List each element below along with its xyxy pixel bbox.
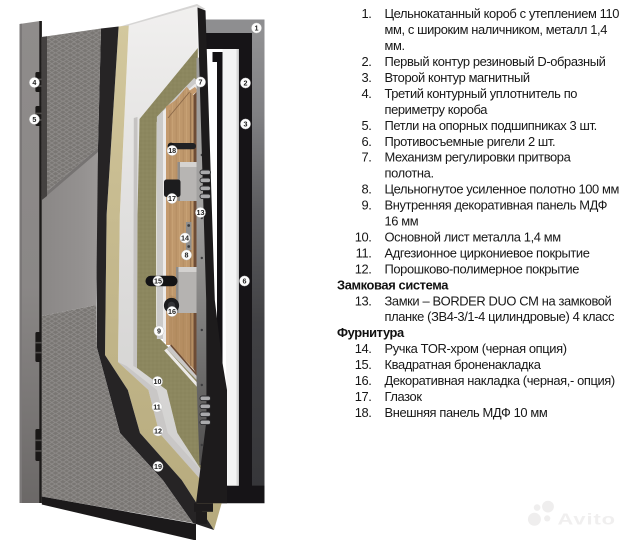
svg-text:Противосъемные ригели 2 шт.: Противосъемные ригели 2 шт.: [385, 134, 556, 149]
svg-text:Порошково-полимерное покрытие: Порошково-полимерное покрытие: [385, 261, 580, 276]
svg-text:7: 7: [199, 78, 203, 87]
svg-text:10.: 10.: [355, 230, 372, 245]
svg-text:Замковая система: Замковая система: [337, 277, 449, 292]
svg-text:Замки – BORDER DUO CM на замко: Замки – BORDER DUO CM на замковой: [385, 293, 612, 308]
svg-text:Третий контурный уплотнитель п: Третий контурный уплотнитель по: [385, 86, 578, 101]
svg-text:Первый контур резиновый D-обра: Первый контур резиновый D-образный: [385, 54, 606, 69]
svg-text:17: 17: [168, 194, 176, 203]
svg-text:11: 11: [153, 403, 161, 412]
svg-text:2: 2: [244, 79, 248, 88]
svg-text:Ручка TOR-хром (черная опция): Ручка TOR-хром (черная опция): [385, 341, 567, 356]
svg-text:Глазок: Глазок: [385, 389, 423, 404]
svg-text:1.: 1.: [362, 6, 372, 21]
svg-text:13: 13: [197, 208, 205, 217]
svg-text:8: 8: [185, 251, 189, 260]
svg-text:Фурнитура: Фурнитура: [337, 325, 405, 340]
svg-text:Внутренняя декоративная панель: Внутренняя декоративная панель МДФ: [385, 198, 608, 213]
svg-text:1: 1: [255, 24, 259, 33]
svg-text:15.: 15.: [355, 357, 372, 372]
svg-text:12.: 12.: [355, 261, 372, 276]
svg-text:5: 5: [32, 115, 36, 124]
svg-text:17.: 17.: [355, 389, 372, 404]
svg-text:9: 9: [157, 327, 161, 336]
svg-text:18.: 18.: [355, 405, 372, 420]
svg-text:10: 10: [154, 377, 162, 386]
svg-text:планке (ЗВ4-3/1-4 цилиндровые): планке (ЗВ4-3/1-4 цилиндровые) 4 класс: [385, 309, 615, 324]
svg-text:мм.: мм.: [385, 38, 405, 53]
svg-text:Основной лист металла 1,4 мм: Основной лист металла 1,4 мм: [385, 230, 561, 245]
svg-text:6.: 6.: [362, 134, 372, 149]
svg-text:мм, с широким наличником, мета: мм, с широким наличником, металл 1,4: [385, 22, 608, 37]
svg-text:Декоративная накладка (черная,: Декоративная накладка (черная,- опция): [385, 373, 615, 388]
svg-text:12: 12: [154, 427, 162, 436]
svg-text:4.: 4.: [362, 86, 372, 101]
svg-text:Петли на опорных подшипниках 3: Петли на опорных подшипниках 3 шт.: [385, 118, 597, 133]
svg-text:полотна.: полотна.: [385, 166, 434, 181]
svg-text:8.: 8.: [362, 182, 372, 197]
svg-text:4: 4: [32, 78, 36, 87]
svg-text:9.: 9.: [362, 198, 372, 213]
svg-text:11.: 11.: [356, 245, 372, 260]
svg-text:6: 6: [243, 277, 247, 286]
svg-text:14.: 14.: [355, 341, 372, 356]
svg-text:13.: 13.: [355, 293, 372, 308]
svg-text:Цельнокатанный короб с утеплен: Цельнокатанный короб с утеплением 110: [385, 6, 620, 21]
svg-text:16.: 16.: [355, 373, 372, 388]
svg-text:Avito: Avito: [558, 512, 616, 529]
svg-text:18: 18: [168, 146, 176, 155]
svg-text:Цельногнутое усиленное полотно: Цельногнутое усиленное полотно 100 мм: [385, 182, 620, 197]
svg-text:16: 16: [168, 307, 176, 316]
svg-text:5.: 5.: [362, 118, 372, 133]
svg-text:19: 19: [154, 462, 162, 471]
svg-text:16 мм: 16 мм: [385, 214, 419, 229]
svg-text:Квадратная броненакладка: Квадратная броненакладка: [385, 357, 542, 372]
svg-text:7.: 7.: [362, 150, 372, 165]
svg-text:3.: 3.: [362, 70, 372, 85]
svg-text:Адгезионное циркониевое покрыт: Адгезионное циркониевое покрытие: [385, 245, 590, 260]
svg-text:Второй контур магнитный: Второй контур магнитный: [385, 70, 530, 85]
svg-text:Внешняя панель МДФ 10 мм: Внешняя панель МДФ 10 мм: [385, 405, 548, 420]
svg-text:15: 15: [154, 277, 162, 286]
svg-text:Механизм регулировки притвора: Механизм регулировки притвора: [385, 150, 572, 165]
svg-text:3: 3: [244, 120, 248, 129]
svg-text:2.: 2.: [362, 54, 372, 69]
svg-text:периметру короба: периметру короба: [385, 102, 489, 117]
svg-text:14: 14: [181, 234, 189, 243]
